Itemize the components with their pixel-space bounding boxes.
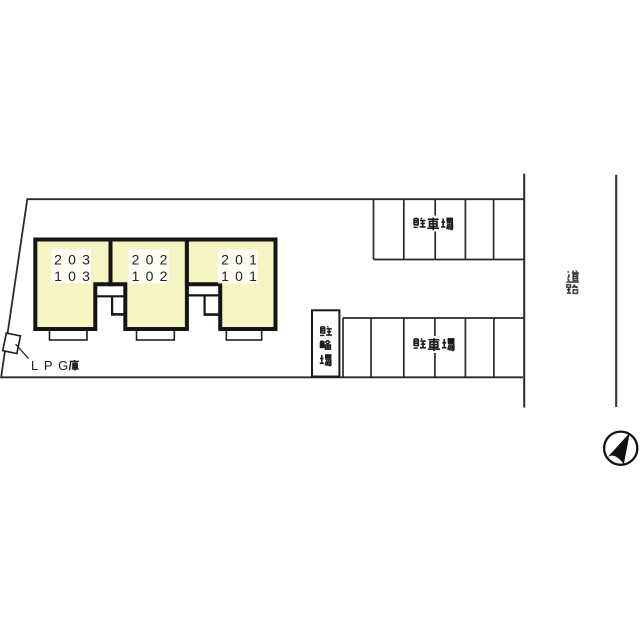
svg-text:103: 103 [54, 268, 96, 284]
svg-text:102: 102 [132, 268, 174, 284]
svg-text:202: 202 [132, 252, 174, 268]
svg-text:LPG: LPG [31, 358, 74, 373]
svg-text:101: 101 [221, 268, 263, 284]
svg-text:201: 201 [221, 252, 263, 268]
svg-text:203: 203 [54, 252, 96, 268]
